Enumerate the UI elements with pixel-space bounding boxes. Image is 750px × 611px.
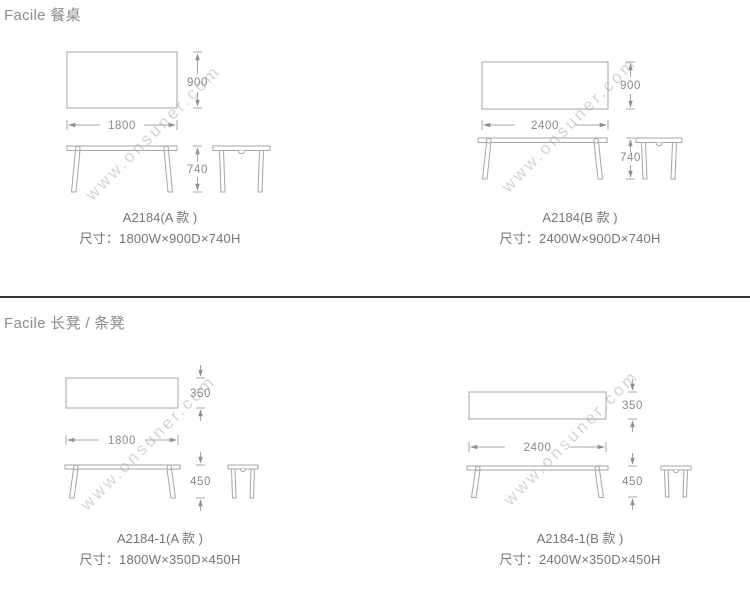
depth-dimension: 900 — [620, 62, 641, 109]
bench-leg — [595, 470, 604, 498]
top-view — [66, 378, 178, 408]
bench-leg — [472, 470, 481, 498]
tabletop-top-view — [67, 52, 177, 108]
height-dimension-value: 740 — [620, 152, 641, 164]
top-view — [469, 392, 606, 419]
height-dimension-value: 450 — [622, 476, 643, 488]
width-dimension-value: 1800 — [108, 120, 136, 132]
product-model: A2184(A 款 ) — [30, 208, 290, 228]
height-dimension-value: 740 — [187, 164, 208, 176]
depth-dimension-value: 900 — [187, 77, 208, 89]
bench-top-view — [469, 392, 606, 419]
depth-dimension-value: 350 — [622, 400, 643, 412]
bench-seat-end — [228, 465, 258, 469]
leg-joint-dot — [487, 139, 492, 144]
product-size: 尺寸：1800W×900D×740H — [30, 229, 290, 249]
depth-dimension: 350 — [622, 379, 643, 432]
depth-dimension: 900 — [187, 52, 208, 108]
product-model: A2184(B 款 ) — [430, 208, 730, 228]
bench-seat-end — [661, 466, 691, 470]
leg-joint-dot — [167, 465, 171, 469]
front-view — [65, 465, 180, 498]
leg-joint-dot — [594, 139, 599, 144]
bench-leg — [167, 469, 176, 498]
bench-leg — [665, 470, 670, 497]
tabletop-front — [478, 138, 607, 143]
table-b-caption: A2184(B 款 ) 尺寸：2400W×900D×740H — [430, 208, 730, 249]
bench-leg — [70, 469, 79, 498]
width-dimension: 2400 — [482, 120, 608, 132]
table-a-drawing: 900 1800 740 — [30, 36, 290, 204]
tabletop-end — [636, 138, 682, 143]
front-view — [67, 146, 177, 192]
table-leg — [164, 150, 173, 192]
product-size: 尺寸：1800W×350D×450H — [30, 550, 290, 570]
table-leg — [220, 151, 226, 193]
bench-b-caption: A2184-1(B 款 ) 尺寸：2400W×350D×450H — [430, 529, 730, 570]
spec-sheet: www.onsuner.com www.onsuner.com www.onsu… — [0, 0, 750, 611]
section-divider — [0, 296, 750, 298]
product-size: 尺寸：2400W×900D×740H — [430, 229, 730, 249]
bench-leg — [683, 470, 688, 497]
width-dimension-value: 2400 — [531, 120, 559, 132]
bench-a-caption: A2184-1(A 款 ) 尺寸：1800W×350D×450H — [30, 529, 290, 570]
table-leg — [483, 143, 492, 180]
front-view — [478, 138, 607, 179]
table-leg — [671, 143, 677, 180]
bench-b-drawing: 350 2400 450 — [430, 362, 730, 512]
tabletop-top-view — [482, 62, 608, 109]
section-header-benches: Facile 长凳 / 条凳 — [4, 312, 125, 333]
notch-detail — [238, 151, 244, 154]
height-dimension-value: 450 — [190, 476, 211, 488]
bench-seat-front — [65, 465, 180, 469]
width-dimension: 2400 — [469, 442, 606, 454]
depth-dimension-value: 900 — [620, 80, 641, 92]
notch-detail — [673, 470, 678, 473]
bench-top-view — [66, 378, 178, 408]
table-leg — [594, 143, 603, 180]
bench-a-drawing: 350 1800 450 — [30, 362, 290, 512]
bench-seat-front — [467, 466, 608, 470]
table-leg — [258, 151, 264, 193]
width-dimension: 1800 — [66, 435, 178, 447]
product-model: A2184-1(B 款 ) — [430, 529, 730, 549]
product-model: A2184-1(A 款 ) — [30, 529, 290, 549]
width-dimension-value: 2400 — [524, 442, 552, 454]
table-a-caption: A2184(A 款 ) 尺寸：1800W×900D×740H — [30, 208, 290, 249]
height-dimension: 740 — [620, 138, 641, 179]
notch-detail — [240, 469, 245, 472]
end-view — [228, 465, 258, 498]
leg-joint-dot — [595, 466, 599, 470]
leg-joint-dot — [476, 466, 480, 470]
notch-detail — [656, 143, 662, 146]
table-b-drawing: 900 2400 740 — [430, 36, 730, 204]
height-dimension: 450 — [622, 453, 643, 510]
bench-leg — [232, 469, 237, 498]
front-view — [467, 466, 608, 498]
height-dimension: 740 — [187, 146, 208, 192]
bench-leg — [250, 469, 255, 498]
width-dimension: 1800 — [67, 120, 177, 132]
table-leg — [72, 150, 81, 192]
depth-dimension-value: 350 — [190, 388, 211, 400]
top-view — [482, 62, 608, 109]
leg-joint-dot — [74, 465, 78, 469]
end-view — [636, 138, 682, 179]
top-view — [67, 52, 177, 108]
product-size: 尺寸：2400W×350D×450H — [430, 550, 730, 570]
tabletop-end — [213, 146, 270, 151]
height-dimension: 450 — [190, 452, 211, 511]
table-leg — [642, 143, 648, 180]
end-view — [213, 146, 270, 192]
depth-dimension: 350 — [190, 365, 211, 421]
section-header-tables: Facile 餐桌 — [4, 4, 81, 25]
leg-joint-dot — [164, 146, 169, 151]
width-dimension-value: 1800 — [108, 435, 136, 447]
leg-joint-dot — [76, 146, 81, 151]
tabletop-front — [67, 146, 177, 151]
end-view — [661, 466, 691, 497]
